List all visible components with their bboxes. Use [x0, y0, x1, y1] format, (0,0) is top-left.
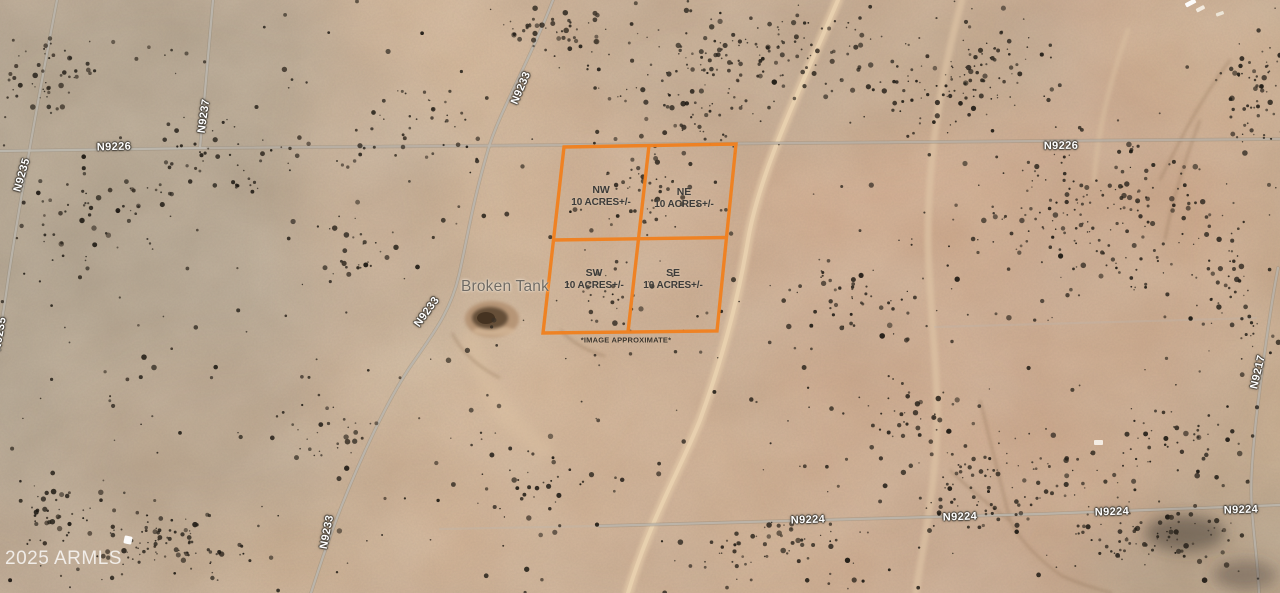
quadrant-name: NW [571, 184, 630, 197]
armls-watermark: 2025 ARMLS [5, 548, 122, 570]
quadrant-area: 10 ACRES+/- [654, 199, 713, 212]
road-label-n9224-b: N9224 [943, 510, 978, 523]
place-label-broken-tank: Broken Tank [461, 278, 549, 296]
quadrant-area: 10 ACRES+/- [564, 280, 623, 293]
image-approximate-disclaimer: *IMAGE APPROXIMATE* [581, 336, 671, 345]
quadrant-area: 10 ACRES+/- [643, 280, 702, 293]
road-label-n9224-d: N9224 [1224, 503, 1259, 516]
parcel-quadrant-label-sw: SW 10 ACRES+/- [564, 267, 623, 293]
terrain-layer [0, 0, 1280, 593]
quadrant-name: SE [643, 267, 702, 280]
satellite-map-image: NW 10 ACRES+/- NE 10 ACRES+/- SW 10 ACRE… [0, 0, 1280, 593]
road-label-n9224-a: N9224 [791, 513, 826, 526]
parcel-quadrant-label-nw: NW 10 ACRES+/- [571, 184, 630, 210]
quadrant-name: SW [564, 267, 623, 280]
parcel-quadrant-label-se: SE 10 ACRES+/- [643, 267, 702, 293]
road-label-n9226-east: N9226 [1044, 140, 1079, 153]
parcel-quadrant-label-ne: NE 10 ACRES+/- [654, 186, 713, 212]
quadrant-name: NE [654, 186, 713, 199]
road-label-n9226-west: N9226 [97, 141, 132, 154]
road-label-n9224-c: N9224 [1095, 505, 1130, 518]
quadrant-area: 10 ACRES+/- [571, 197, 630, 210]
